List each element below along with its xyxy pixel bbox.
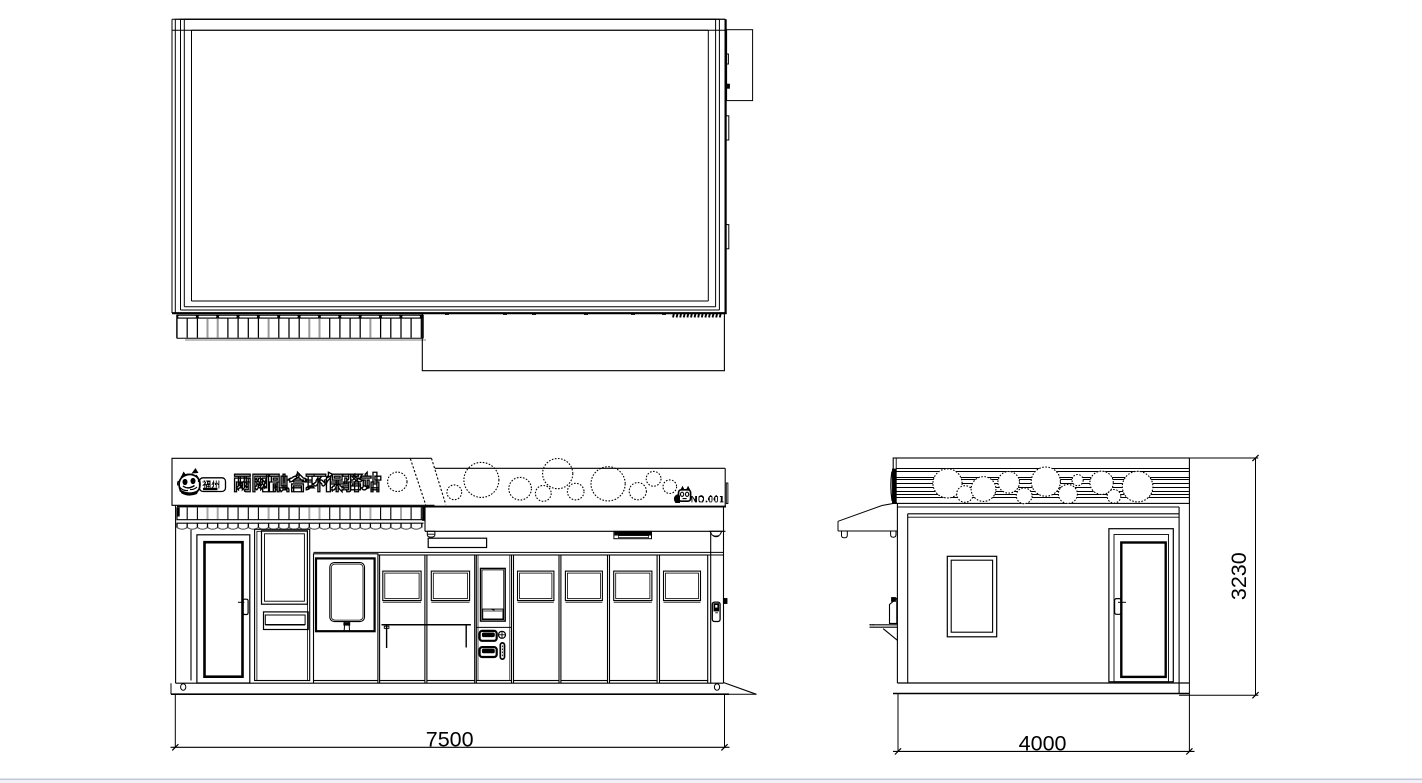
svg-text:7500: 7500 — [426, 728, 474, 752]
svg-text:4000: 4000 — [1019, 732, 1067, 756]
svg-text:3230: 3230 — [1227, 552, 1251, 600]
